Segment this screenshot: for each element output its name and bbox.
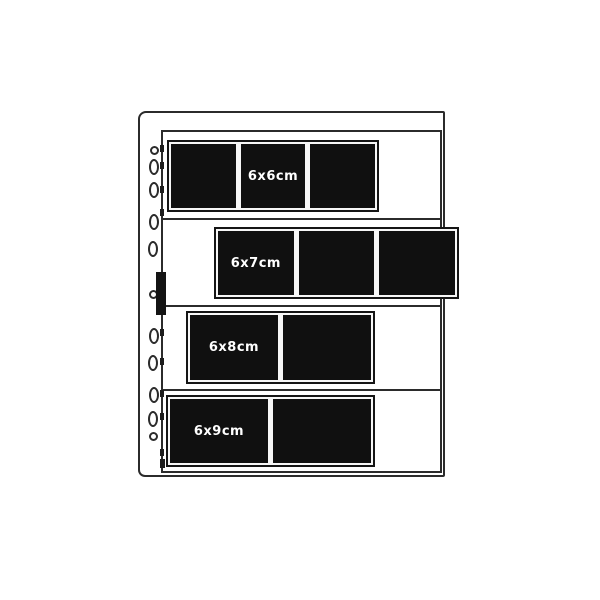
film-strip-6x9: 6x9cm <box>166 395 375 467</box>
film-frame: 6x9cm <box>170 399 268 463</box>
pocket-row-divider <box>163 218 440 220</box>
film-frame <box>310 144 375 208</box>
film-frame <box>379 231 455 295</box>
binder-hole-icon <box>148 241 158 257</box>
film-frame <box>171 144 236 208</box>
film-frame: 6x6cm <box>241 144 306 208</box>
binder-hole-icon <box>150 146 159 155</box>
format-label-6x9: 6x9cm <box>194 424 244 439</box>
weld-mark <box>160 329 164 336</box>
weld-mark <box>160 390 164 397</box>
film-frame: 6x8cm <box>190 315 278 380</box>
weld-mark <box>160 449 164 456</box>
binder-hole-icon <box>149 387 159 403</box>
film-strip-6x8: 6x8cm <box>186 311 375 384</box>
weld-mark <box>160 162 164 169</box>
film-frame <box>273 399 371 463</box>
clip-tab-icon <box>156 272 166 315</box>
weld-mark <box>160 145 164 152</box>
weld-mark <box>160 209 164 216</box>
format-label-6x8: 6x8cm <box>209 340 259 355</box>
format-label-6x7: 6x7cm <box>231 256 281 271</box>
format-label-6x6: 6x6cm <box>248 169 298 184</box>
binder-hole-icon <box>149 159 159 175</box>
pocket-row-divider <box>163 389 440 391</box>
film-frame <box>299 231 375 295</box>
binder-hole-icon <box>149 182 159 198</box>
weld-mark <box>160 358 164 365</box>
binder-hole-icon <box>149 328 159 344</box>
weld-mark <box>160 459 165 468</box>
binder-hole-icon <box>148 411 158 427</box>
pocket-row-divider <box>163 305 440 307</box>
binder-hole-icon <box>148 355 158 371</box>
weld-mark <box>160 186 164 193</box>
film-strip-6x6: 6x6cm <box>167 140 379 212</box>
film-frame: 6x7cm <box>218 231 294 295</box>
binder-hole-icon <box>149 214 159 230</box>
binder-hole-icon <box>149 432 158 441</box>
film-frame <box>283 315 371 380</box>
film-strip-6x7: 6x7cm <box>214 227 459 299</box>
weld-mark <box>160 413 164 420</box>
negative-filing-sheet-illustration: 6x6cm 6x7cm 6x8cm 6x9cm <box>0 0 600 600</box>
